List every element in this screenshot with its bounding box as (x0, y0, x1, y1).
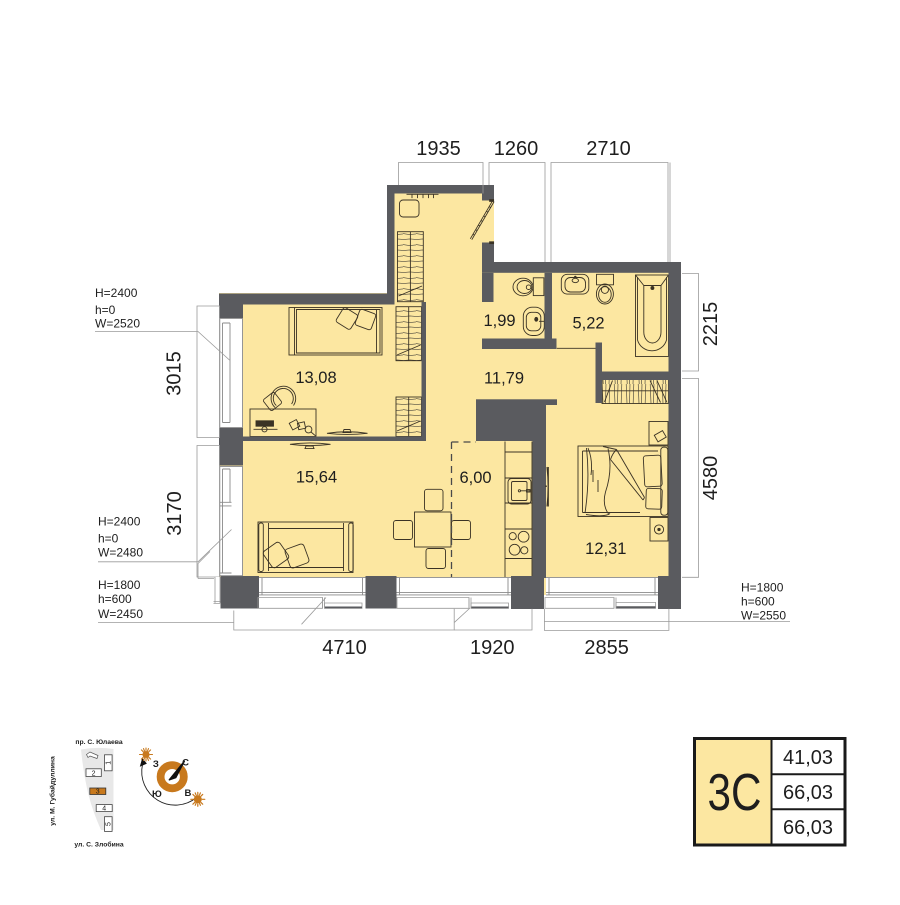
svg-text:4: 4 (102, 806, 106, 813)
svg-text:W=2450: W=2450 (98, 607, 143, 621)
svg-text:ул. М. Губайдуллина: ул. М. Губайдуллина (49, 756, 57, 826)
svg-text:1935: 1935 (416, 138, 461, 160)
svg-text:13,08: 13,08 (295, 369, 336, 387)
svg-text:1: 1 (106, 761, 113, 765)
svg-text:h=600: h=600 (741, 595, 775, 609)
svg-text:3170: 3170 (164, 491, 186, 536)
svg-text:W=2480: W=2480 (98, 546, 143, 560)
svg-text:5,22: 5,22 (572, 315, 604, 333)
svg-text:1260: 1260 (494, 138, 539, 160)
svg-text:12,31: 12,31 (585, 540, 626, 558)
svg-text:1920: 1920 (470, 637, 515, 659)
svg-text:3С: 3С (708, 764, 762, 822)
svg-text:З: З (153, 759, 159, 770)
svg-text:H=2400: H=2400 (98, 515, 141, 529)
svg-text:41,03: 41,03 (783, 747, 833, 769)
svg-text:2215: 2215 (700, 302, 722, 347)
svg-text:4710: 4710 (322, 637, 367, 659)
svg-text:3015: 3015 (164, 351, 186, 396)
svg-text:11,79: 11,79 (484, 370, 524, 388)
svg-text:2710: 2710 (586, 138, 631, 160)
svg-text:В: В (184, 788, 191, 799)
svg-text:ул. С. Злобина: ул. С. Злобина (74, 841, 124, 849)
svg-text:W=2550: W=2550 (741, 609, 786, 623)
svg-text:пр. С. Юлаева: пр. С. Юлаева (75, 739, 123, 746)
svg-text:66,03: 66,03 (783, 817, 833, 839)
svg-text:W=2520: W=2520 (95, 317, 140, 331)
svg-text:5: 5 (106, 822, 113, 826)
svg-text:h=0: h=0 (95, 303, 116, 317)
svg-text:H=1800: H=1800 (98, 578, 141, 592)
svg-text:3: 3 (96, 789, 100, 796)
svg-text:Ю: Ю (152, 789, 162, 800)
svg-text:15,64: 15,64 (296, 469, 337, 487)
svg-text:H=2400: H=2400 (95, 286, 138, 300)
svg-text:6,00: 6,00 (459, 469, 491, 487)
svg-text:h=600: h=600 (98, 592, 132, 606)
svg-text:2855: 2855 (584, 637, 629, 659)
svg-text:2: 2 (92, 770, 96, 777)
svg-text:С: С (182, 758, 189, 769)
svg-text:h=0: h=0 (98, 532, 119, 546)
svg-text:4580: 4580 (700, 456, 722, 501)
svg-text:1,99: 1,99 (483, 312, 515, 330)
svg-text:66,03: 66,03 (783, 782, 833, 804)
svg-text:H=1800: H=1800 (741, 581, 784, 595)
